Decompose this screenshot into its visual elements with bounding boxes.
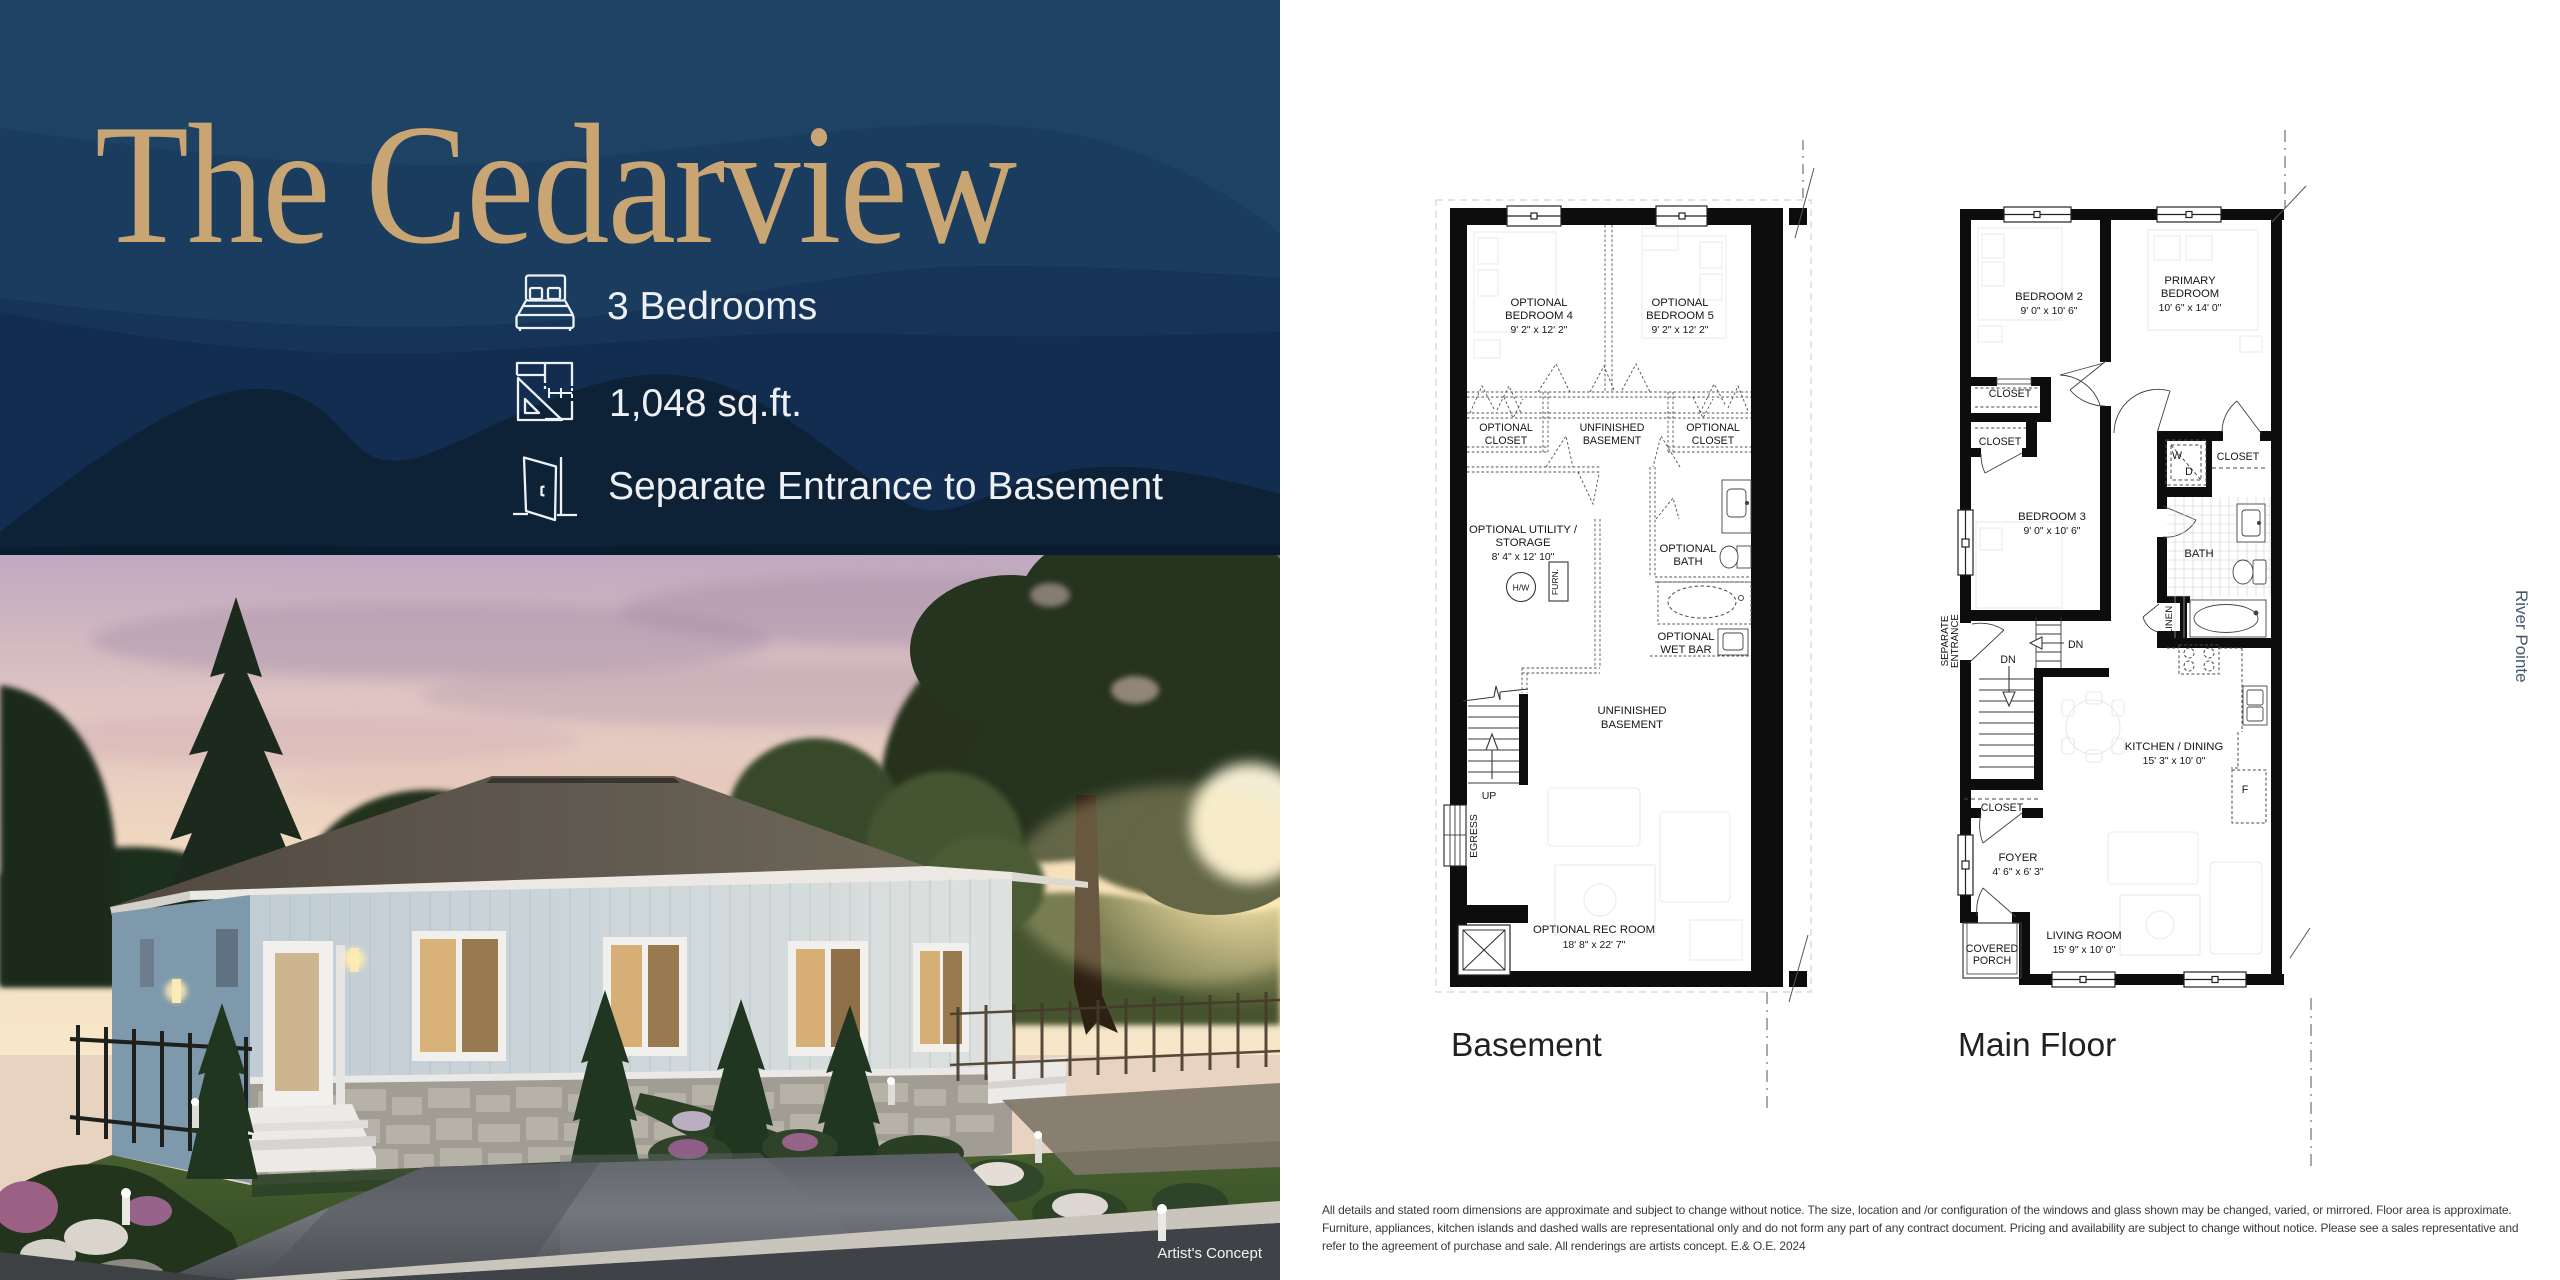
svg-text:COVERED: COVERED [1966,943,2019,955]
svg-text:EGRESS: EGRESS [1468,814,1480,858]
svg-text:9' 2" x 12' 2": 9' 2" x 12' 2" [1511,325,1568,336]
svg-text:DN: DN [2068,639,2083,651]
svg-text:D: D [2185,466,2193,478]
svg-text:15' 3" x 10' 0": 15' 3" x 10' 0" [2143,756,2206,767]
svg-text:F: F [2242,784,2249,796]
svg-text:CLOSET: CLOSET [1979,436,2022,448]
svg-text:CLOSET: CLOSET [1989,388,2032,400]
svg-text:BASEMENT: BASEMENT [1601,719,1663,731]
svg-text:LIVING ROOM: LIVING ROOM [2046,930,2121,942]
svg-text:18' 8" x 22' 7": 18' 8" x 22' 7" [1563,940,1626,951]
svg-text:9' 2" x 12' 2": 9' 2" x 12' 2" [1652,325,1709,336]
svg-text:UP: UP [1482,790,1497,802]
svg-text:WET BAR: WET BAR [1660,644,1711,656]
svg-text:OPTIONAL: OPTIONAL [1651,297,1708,309]
svg-text:OPTIONAL: OPTIONAL [1510,297,1567,309]
svg-text:8' 4" x 12' 10": 8' 4" x 12' 10" [1492,552,1555,563]
svg-text:BEDROOM 5: BEDROOM 5 [1646,310,1714,322]
svg-text:9' 0" x 10' 6": 9' 0" x 10' 6" [2024,526,2081,537]
svg-text:KITCHEN / DINING: KITCHEN / DINING [2125,741,2224,753]
svg-text:STORAGE: STORAGE [1495,537,1550,549]
svg-text:10' 6" x 14' 0": 10' 6" x 14' 0" [2159,303,2222,314]
svg-text:CLOSET: CLOSET [1981,802,2024,814]
svg-text:BEDROOM 3: BEDROOM 3 [2018,511,2086,523]
svg-text:PORCH: PORCH [1973,955,2011,967]
svg-text:CLOSET: CLOSET [2217,451,2260,463]
svg-text:W: W [2172,450,2182,462]
svg-text:FURN.: FURN. [1550,569,1560,595]
svg-text:OPTIONAL: OPTIONAL [1657,631,1714,643]
svg-text:BEDROOM 4: BEDROOM 4 [1505,310,1573,322]
svg-text:Artist's Concept: Artist's Concept [1157,1245,1262,1262]
svg-text:OPTIONAL REC ROOM: OPTIONAL REC ROOM [1533,924,1655,936]
svg-text:ENTRANCE: ENTRANCE [1950,614,1961,668]
svg-text:FOYER: FOYER [1999,852,2038,864]
svg-text:OPTIONAL UTILITY /: OPTIONAL UTILITY / [1469,524,1578,536]
svg-text:CLOSET: CLOSET [1692,435,1735,447]
svg-text:OPTIONAL: OPTIONAL [1686,422,1740,434]
svg-text:UNFINISHED: UNFINISHED [1597,705,1666,717]
svg-text:LINEN: LINEN [2164,606,2175,634]
svg-text:15' 9" x 10' 0": 15' 9" x 10' 0" [2053,945,2116,956]
svg-text:BATH: BATH [2184,548,2213,560]
svg-text:9' 0" x 10' 6": 9' 0" x 10' 6" [2021,306,2078,317]
svg-text:PRIMARY: PRIMARY [2164,275,2216,287]
svg-text:UNFINISHED: UNFINISHED [1580,422,1645,434]
svg-text:4' 6" x 6' 3": 4' 6" x 6' 3" [1992,867,2044,878]
svg-text:BASEMENT: BASEMENT [1583,435,1642,447]
svg-text:H/W: H/W [1513,583,1531,593]
svg-text:DN: DN [2000,654,2015,666]
svg-text:BEDROOM: BEDROOM [2161,288,2219,300]
svg-text:OPTIONAL: OPTIONAL [1659,543,1716,555]
svg-text:BEDROOM 2: BEDROOM 2 [2015,291,2083,303]
svg-text:OPTIONAL: OPTIONAL [1479,422,1533,434]
svg-text:BATH: BATH [1673,556,1702,568]
svg-text:CLOSET: CLOSET [1485,435,1528,447]
